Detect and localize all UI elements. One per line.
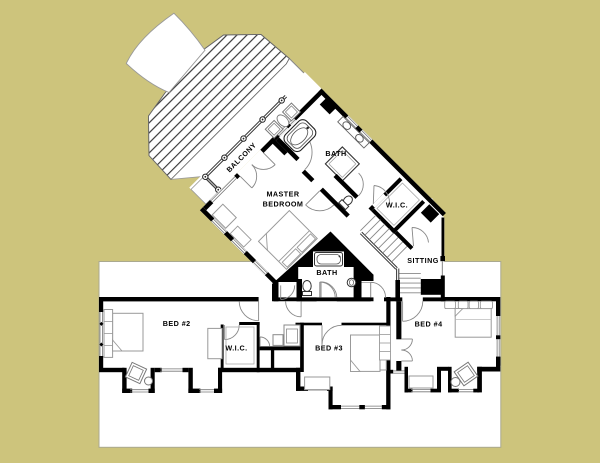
svg-text:BATH: BATH [316, 268, 337, 277]
svg-text:BED #3: BED #3 [315, 344, 343, 353]
svg-text:BED #4: BED #4 [415, 319, 443, 328]
svg-text:W.I.C.: W.I.C. [225, 344, 247, 353]
svg-text:MASTER: MASTER [266, 190, 299, 199]
svg-text:SITTING: SITTING [407, 256, 439, 265]
svg-text:BEDROOM: BEDROOM [263, 200, 304, 209]
svg-text:BED #2: BED #2 [163, 319, 191, 328]
svg-text:BATH: BATH [325, 149, 346, 158]
svg-text:W.I.C.: W.I.C. [386, 201, 408, 210]
